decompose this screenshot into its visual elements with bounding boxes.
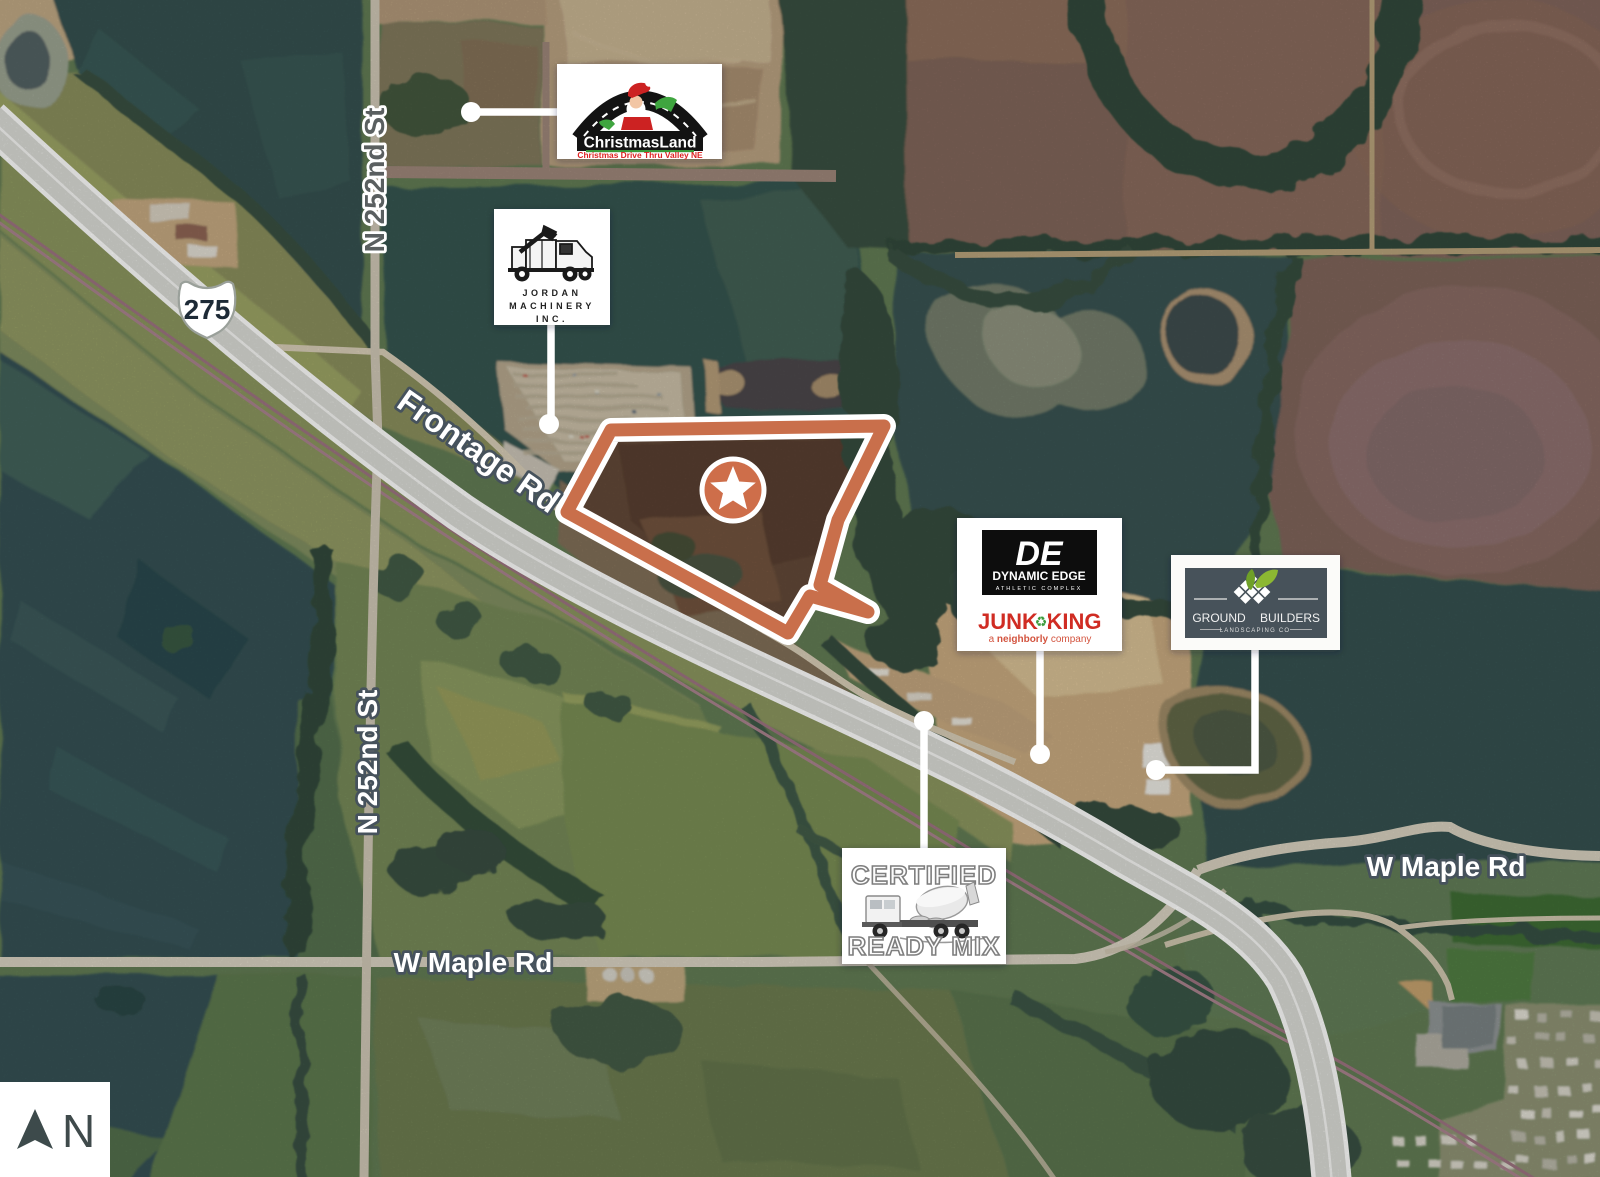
svg-text:ChristmasLand: ChristmasLand [584,135,697,152]
svg-text:INC.: INC. [536,314,568,324]
svg-text:READY MIX: READY MIX [848,931,1001,961]
svg-text:W Maple Rd: W Maple Rd [394,947,553,978]
svg-text:DE: DE [1015,535,1064,573]
svg-text:KING: KING [1047,609,1102,634]
svg-text:N 252nd St: N 252nd St [359,108,390,253]
svg-text:JUNK: JUNK [978,609,1038,634]
svg-text:W Maple Rd: W Maple Rd [1367,851,1526,882]
svg-text:LANDSCAPING CO: LANDSCAPING CO [1220,628,1290,634]
svg-text:BUILDERS: BUILDERS [1260,611,1320,625]
svg-text:Christmas Drive Thru Valley NE: Christmas Drive Thru Valley NE [577,150,703,160]
svg-text:N 252nd St: N 252nd St [352,690,383,835]
svg-text:DYNAMIC EDGE: DYNAMIC EDGE [992,569,1085,583]
svg-text:♻: ♻ [1035,614,1048,630]
svg-text:MACHINERY: MACHINERY [509,301,595,311]
svg-text:ATHLETIC COMPLEX: ATHLETIC COMPLEX [996,586,1083,592]
svg-text:275: 275 [184,294,231,325]
svg-text:GROUND: GROUND [1192,611,1246,625]
svg-text:a neighborly company: a neighborly company [989,634,1092,645]
svg-text:JORDAN: JORDAN [522,288,581,298]
svg-text:N: N [62,1105,95,1157]
